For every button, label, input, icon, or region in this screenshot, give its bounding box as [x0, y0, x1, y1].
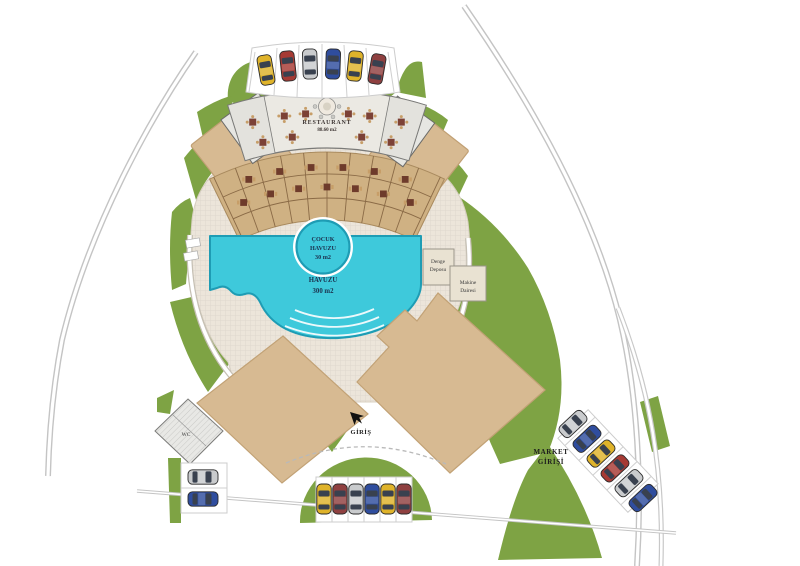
parking-north	[246, 42, 400, 98]
car	[349, 484, 363, 514]
lawn-west-parking-strip	[168, 458, 181, 523]
restaurant-label: RESTAURANT	[303, 120, 352, 126]
site-plan-canvas: RESTAURANT 88.60 m2 YÜZME HAVUZU 300 m2 …	[0, 0, 800, 566]
main-pool-label-2: HAVUZU	[309, 277, 338, 284]
lawn-wc-corner	[157, 390, 174, 414]
machine-room-label-1: Makine	[460, 280, 477, 286]
car	[188, 492, 218, 506]
parking-south	[316, 477, 412, 522]
car	[279, 50, 296, 81]
balance-tank-label-1: Denge	[431, 259, 446, 265]
car	[188, 470, 218, 484]
kids-pool: ÇOCUK HAVUZU 30 m2	[293, 217, 353, 277]
main-pool-label-3: 300 m2	[313, 288, 335, 295]
restaurant-area-label: 88.60 m2	[317, 128, 337, 133]
car	[302, 49, 317, 79]
kids-pool-label-3: 30 m2	[315, 254, 331, 261]
entrance-label: GİRİŞ	[351, 429, 372, 436]
car	[325, 49, 340, 79]
car	[333, 484, 347, 514]
balance-tank-label-2: Deposu	[430, 267, 447, 273]
machine-room-label-2: Dairesi	[460, 288, 476, 294]
kids-pool-label-2: HAVUZU	[310, 245, 337, 252]
kids-pool-label-1: ÇOCUK	[311, 236, 334, 243]
market-entrance-label-2: GİRİŞİ	[538, 458, 564, 466]
lawn-north-east-blob	[396, 62, 426, 98]
car	[365, 484, 379, 514]
wc-label: WC	[182, 432, 191, 438]
car	[317, 484, 331, 514]
car	[397, 484, 411, 514]
car	[381, 484, 395, 514]
parking-west	[181, 463, 227, 513]
site-plan: RESTAURANT 88.60 m2 YÜZME HAVUZU 300 m2 …	[0, 0, 800, 566]
market-entrance-label-1: MARKET	[533, 448, 568, 456]
car	[346, 50, 363, 81]
